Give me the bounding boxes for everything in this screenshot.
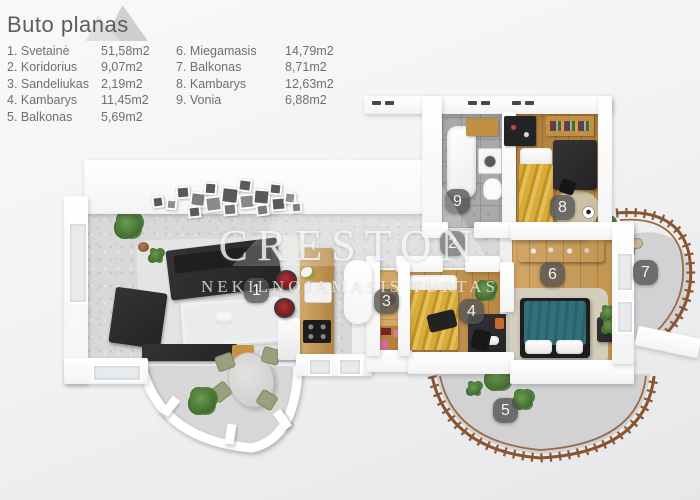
badge-room-6: 6 [540,262,565,287]
kitchen-window [308,358,332,376]
legend-item: 4. Kambarys11,45m2 [7,93,172,109]
legend-column-1: 1. Svetainė51,58m2 2. Koridorius9,07m2 3… [7,44,172,126]
badge-room-1: 1 [244,278,269,303]
badge-number: 7 [641,264,650,282]
left-window [68,222,88,304]
balcony5-plant [468,382,481,395]
living-plant-small [150,249,163,262]
room-label: 3. Sandeliukas [7,77,89,91]
legend-item: 9. Vonia6,88m2 [176,93,341,109]
room-area: 8,71m2 [285,60,327,74]
storage-room4-divider [398,262,410,356]
room-area: 14,79m2 [285,44,334,58]
badge-room-5: 5 [493,398,518,423]
living-plant [116,212,142,238]
room-area: 12,63m2 [285,77,334,91]
books-row [550,121,590,131]
bed6-teal-mattress [524,301,586,345]
upper-block-top-wall [364,96,612,114]
room-area: 51,58m2 [101,44,150,58]
badge-number: 6 [548,266,557,284]
badge-number: 1 [252,282,261,300]
corridor-bottom-wall-c [465,256,500,272]
kitchen-sink [304,282,332,303]
badge-room-2: 2 [440,231,465,256]
room-area: 9,07m2 [101,60,143,74]
bed8-gold-blanket [519,164,553,226]
bedroom6-dresser [518,240,604,262]
room4-plant [477,281,496,300]
badge-number: 8 [558,199,567,217]
room-label: 2. Koridorius [7,60,77,74]
room4-bottom-wall [408,352,514,374]
badge-room-3: 3 [374,289,399,314]
cooktop [303,320,331,343]
wall-vent [512,101,521,105]
kitchen-window2 [338,358,362,376]
wall-vent [372,101,381,105]
room-label: 7. Balkonas [176,60,241,74]
bedroom6-window2 [616,300,634,334]
room-label: 4. Kambarys [7,93,77,107]
legend-item: 3. Sandeliukas2,19m2 [7,77,172,93]
room-area: 11,45m2 [101,93,149,107]
bed6-pillow [556,340,583,354]
storage-box-pink2 [380,340,388,350]
bar-stool [276,270,297,290]
badge-room-9: 9 [445,189,470,214]
bookshelf [546,116,594,136]
bottom-window [92,364,142,382]
badge-room-7: 7 [633,260,658,285]
page-title: Buto planas [7,12,129,38]
badge-room-4: 4 [459,299,484,324]
room-label: 9. Vonia [176,93,221,107]
legend-item: 7. Balkonas8,71m2 [176,60,341,76]
upper-block-left-wall [422,96,442,232]
badge-number: 2 [448,235,457,253]
legend-item: 5. Balkonas5,69m2 [7,110,172,126]
legend-item: 6. Miegamasis14,79m2 [176,44,341,60]
badge-number: 9 [453,193,462,211]
legend-column-2: 6. Miegamasis14,79m2 7. Balkonas8,71m2 8… [176,44,341,110]
bathtub [447,126,476,198]
room-area: 6,88m2 [285,93,327,107]
coffee-table-book [215,312,233,324]
bedroom6-window [616,252,634,292]
room4-bedroom6-divider [500,262,514,312]
legend-item: 2. Koridorius9,07m2 [7,60,172,76]
bathroom-shelf [466,118,498,136]
plant-pot [138,242,149,252]
bar-stool [274,298,295,318]
bedroom6-right-wall [612,224,634,364]
legend-item: 8. Kambarys12,63m2 [176,77,341,93]
badge-number: 3 [382,293,391,311]
soccer-ball [582,206,595,219]
room-label: 8. Kambarys [176,77,246,91]
room-label: 6. Miegamasis [176,44,257,58]
room-area: 2,19m2 [101,77,143,91]
bed6-pillow [525,340,552,354]
room-area: 5,69m2 [101,110,143,124]
badge-room-8: 8 [550,195,575,220]
round-pillar [344,260,372,324]
washing-machine [478,148,502,174]
storage-box-red [381,328,391,335]
desk4-orange-box [495,318,504,329]
badge-number: 4 [467,303,476,321]
toilet [483,178,502,200]
room-label: 5. Balkonas [7,110,72,124]
floor-plan-page: 1 2 3 4 5 6 7 8 9 CRESTON NEKILNOJAMASIS… [0,0,700,500]
armchair [108,287,167,350]
bay-plant [190,388,216,414]
fruit-bowl [300,266,314,278]
photo-collage [504,116,536,146]
upper-block-right-wall [598,96,612,236]
badge-number: 5 [501,402,510,420]
room-label: 1. Svetainė [7,44,70,58]
legend-item: 1. Svetainė51,58m2 [7,44,172,60]
wall-vent [468,101,477,105]
